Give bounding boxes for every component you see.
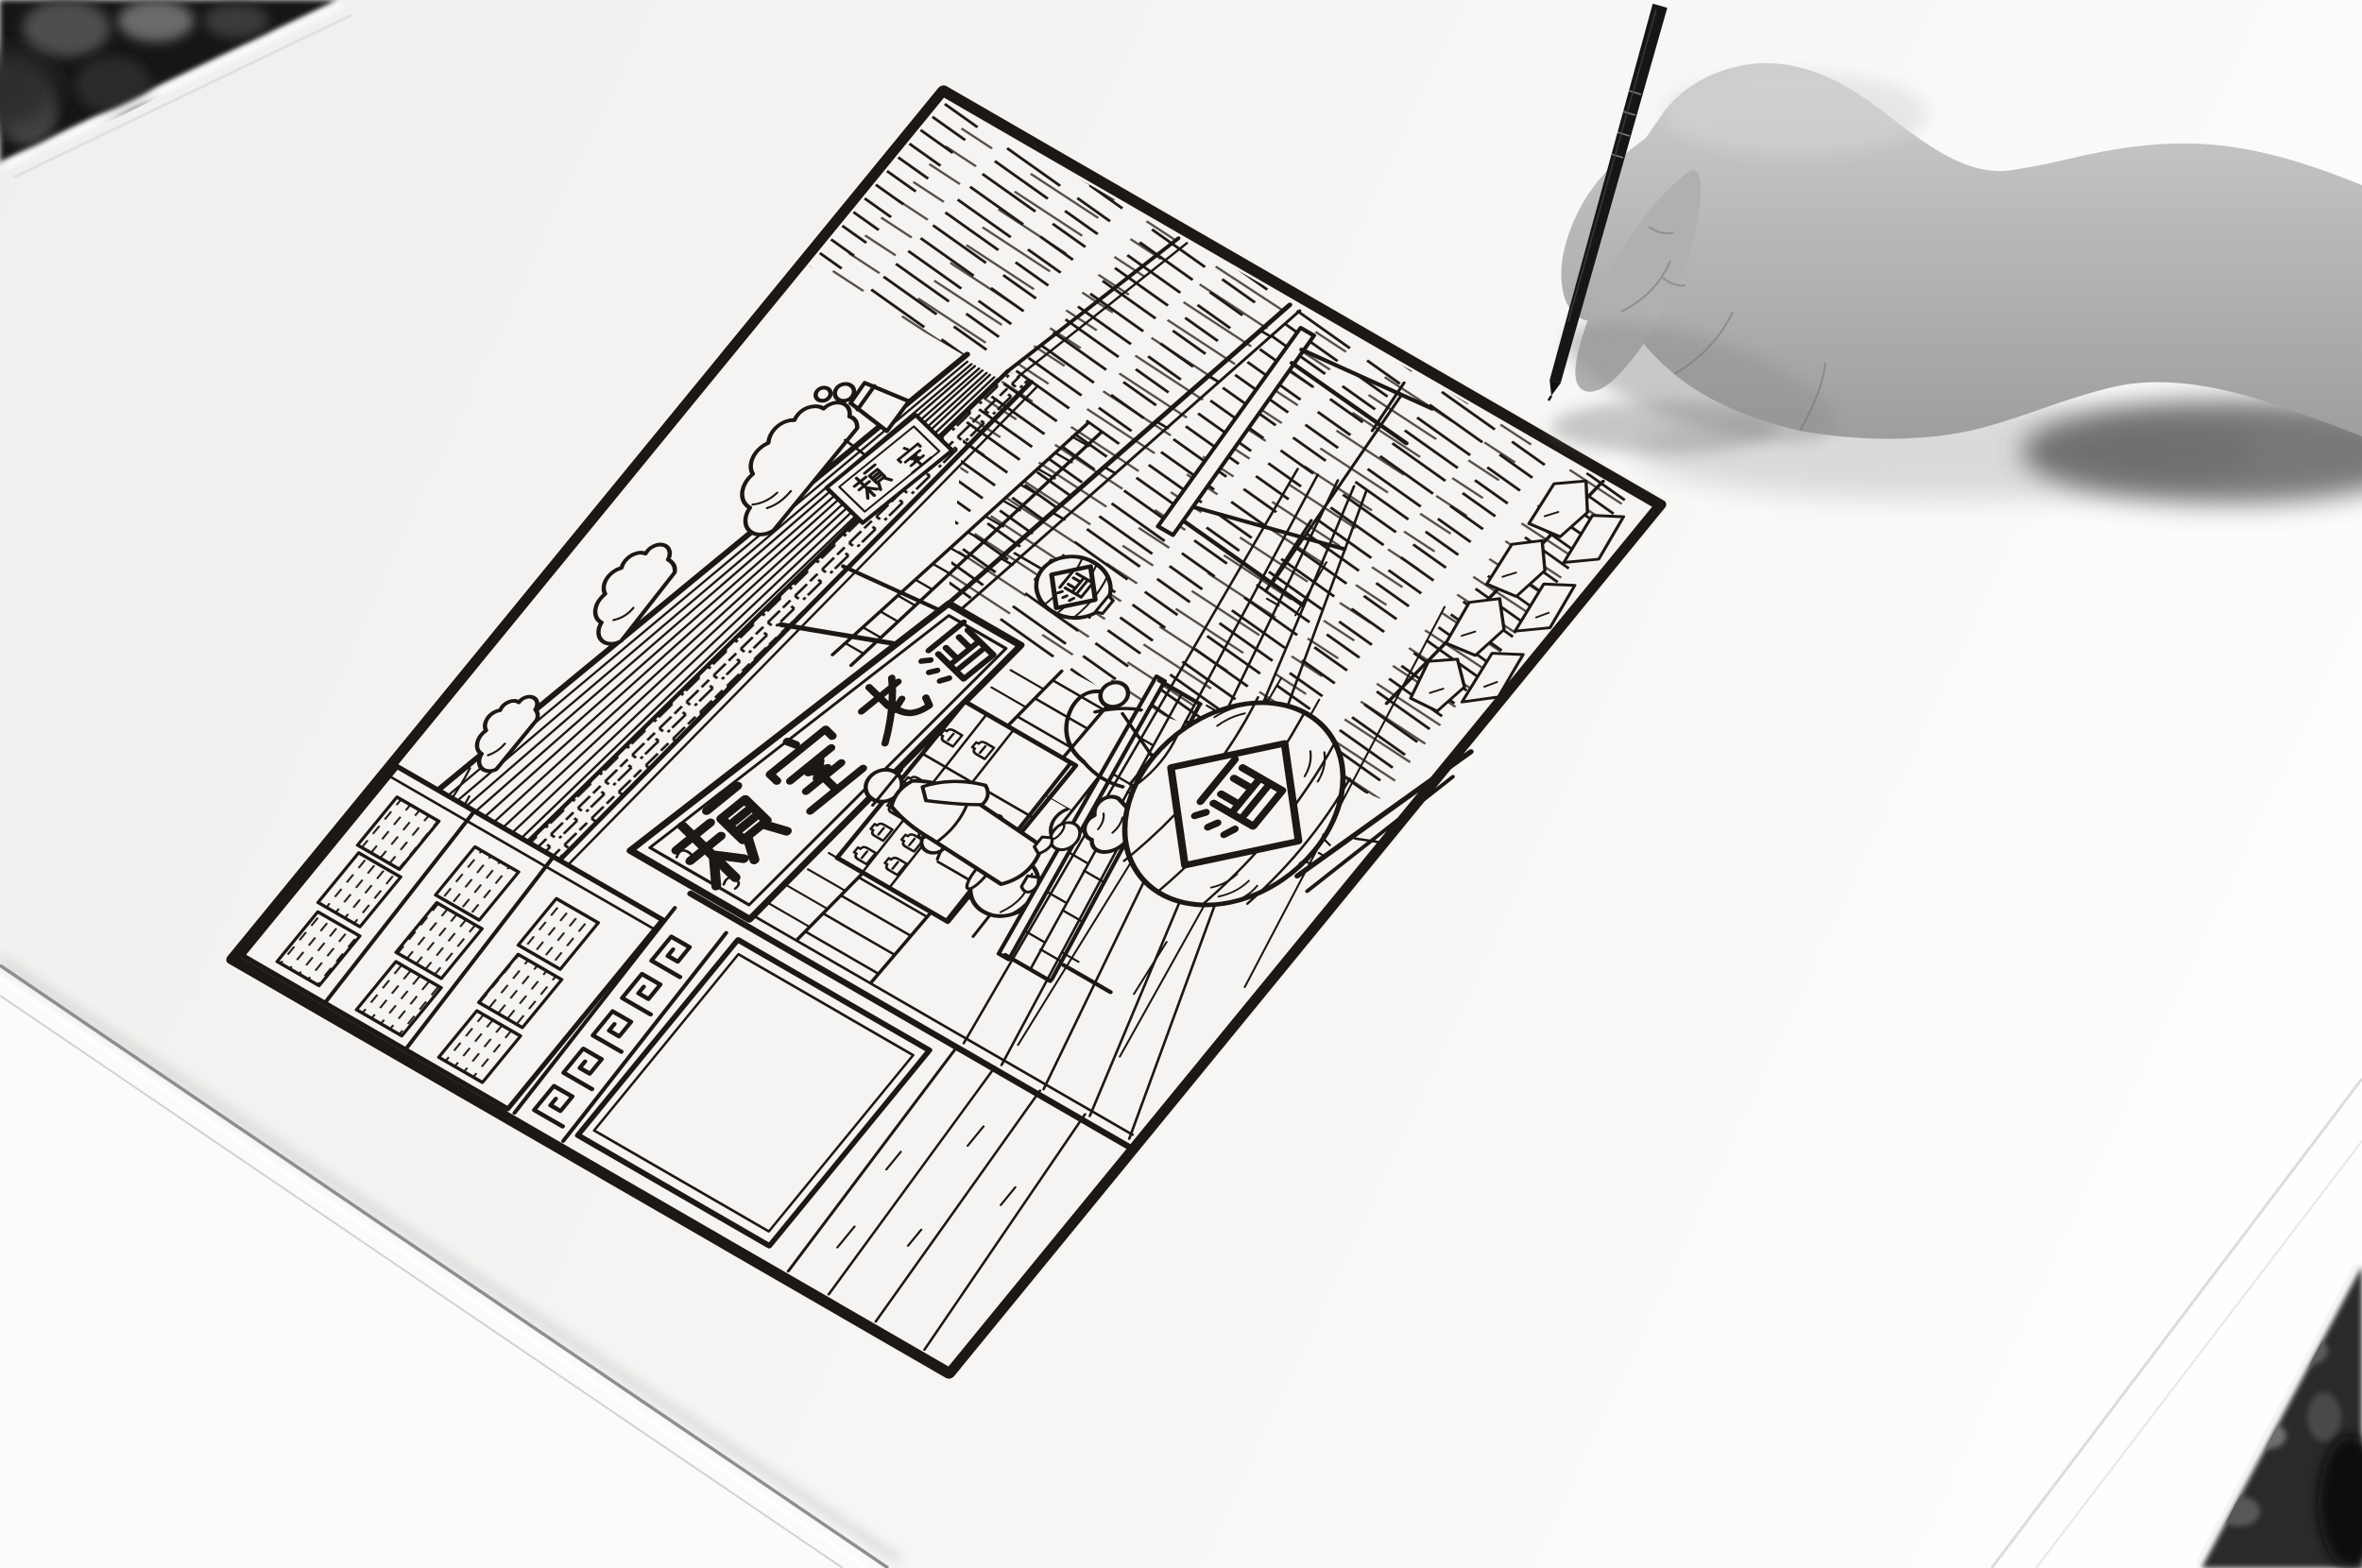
dark-corner-bottomright (1992, 1079, 2362, 1568)
background-room-topleft (0, 0, 351, 178)
artist-hand-with-pen (1455, 0, 2362, 586)
photograph-hand-drawing-chinese-tavern-illustration: 赖室老酒 (0, 0, 2362, 1568)
